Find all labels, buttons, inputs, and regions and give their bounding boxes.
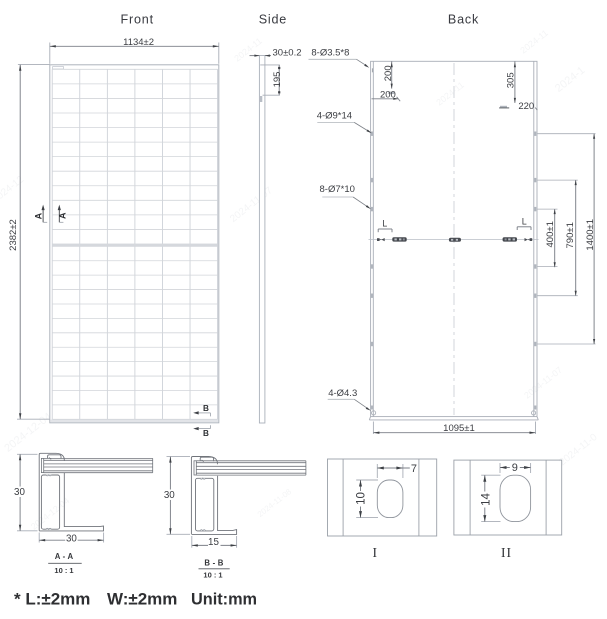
svg-text:Side: Side (259, 13, 287, 27)
svg-text:2382±2: 2382±2 (8, 219, 19, 251)
svg-text:8-Ø3.5*8: 8-Ø3.5*8 (311, 48, 349, 59)
svg-text:A - A: A - A (55, 552, 74, 561)
svg-text:B: B (203, 404, 209, 413)
svg-text:B - B: B - B (204, 558, 223, 567)
svg-text:790±1: 790±1 (565, 222, 576, 248)
svg-text:II: II (501, 545, 512, 560)
svg-text:1400±1: 1400±1 (585, 219, 596, 251)
svg-text:A: A (34, 212, 44, 219)
svg-text:30: 30 (66, 534, 77, 545)
svg-text:1095±1: 1095±1 (443, 423, 475, 434)
svg-text:I: I (373, 545, 378, 560)
svg-text:200: 200 (383, 65, 394, 81)
svg-text:8-Ø7*10: 8-Ø7*10 (320, 184, 355, 195)
svg-text:14: 14 (480, 493, 492, 506)
svg-text:Front: Front (120, 13, 153, 27)
svg-text:400±1: 400±1 (545, 221, 556, 247)
svg-text:15: 15 (208, 537, 219, 548)
svg-text:220: 220 (518, 101, 534, 112)
svg-text:B: B (203, 429, 209, 438)
svg-text:30±0.2: 30±0.2 (273, 48, 302, 59)
svg-text:4-Ø9*14: 4-Ø9*14 (317, 110, 352, 121)
svg-text:30: 30 (164, 490, 175, 501)
svg-text:9: 9 (512, 462, 518, 474)
svg-text:200: 200 (380, 89, 396, 100)
svg-text:10: 10 (356, 492, 368, 505)
svg-text:W:±2mm: W:±2mm (107, 590, 177, 609)
svg-text:A: A (58, 212, 68, 219)
svg-text:195: 195 (272, 72, 283, 88)
svg-text:* L:±2mm: * L:±2mm (14, 590, 90, 609)
svg-text:30: 30 (14, 487, 25, 498)
svg-text:Unit:mm: Unit:mm (191, 591, 257, 609)
svg-text:10 : 1: 10 : 1 (54, 566, 73, 575)
svg-text:305: 305 (505, 72, 516, 88)
svg-text:7: 7 (411, 463, 417, 475)
svg-text:1134±2: 1134±2 (123, 37, 154, 48)
svg-text:4-Ø4.3: 4-Ø4.3 (328, 388, 357, 399)
svg-text:L: L (522, 216, 527, 226)
svg-text:10 : 1: 10 : 1 (203, 571, 222, 580)
svg-text:Back: Back (448, 13, 479, 27)
svg-text:L: L (382, 219, 387, 229)
